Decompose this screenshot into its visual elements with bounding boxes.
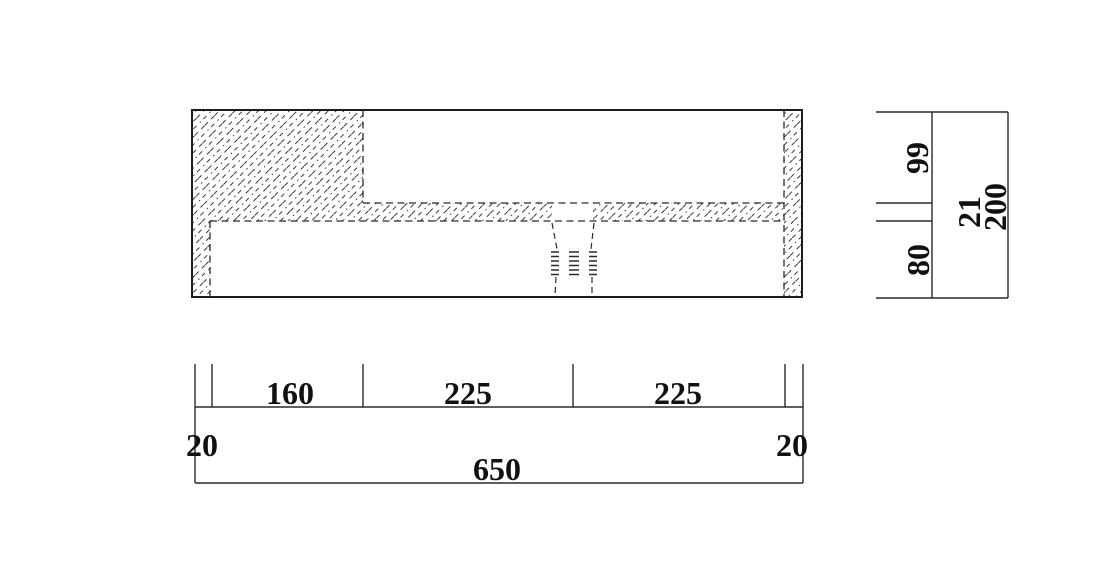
drain-fitting xyxy=(551,223,597,296)
section-view xyxy=(192,110,802,297)
dim-label-99: 99 xyxy=(899,142,935,174)
drawing-page: 160 225 225 20 20 650 99 80 21 200 xyxy=(0,0,1112,568)
dim-label-225-right: 225 xyxy=(654,375,702,411)
technical-drawing-canvas: 160 225 225 20 20 650 99 80 21 200 xyxy=(0,0,1112,568)
dim-label-225-left: 225 xyxy=(444,375,492,411)
bottom-dimension-chain: 160 225 225 20 20 650 xyxy=(186,364,808,487)
dim-label-80: 80 xyxy=(900,244,936,276)
hatch-left-wall xyxy=(192,221,210,297)
drain-taper-right xyxy=(591,223,594,249)
dim-label-650: 650 xyxy=(473,451,521,487)
hatch-right-wall xyxy=(784,110,802,297)
drain-thread-section xyxy=(551,252,597,275)
right-dimension-chain: 99 80 21 200 xyxy=(876,112,1013,298)
hatch-top-left-block xyxy=(192,110,363,221)
dim-label-200: 200 xyxy=(977,183,1013,231)
drain-taper-left xyxy=(552,223,557,249)
hatch-strip-right xyxy=(593,203,784,221)
dim-label-20-right: 20 xyxy=(776,427,808,463)
hatch-strip-left xyxy=(363,203,552,221)
dim-label-20-left: 20 xyxy=(186,427,218,463)
dim-label-160: 160 xyxy=(266,375,314,411)
drain-pipe-left-edge xyxy=(555,277,556,296)
